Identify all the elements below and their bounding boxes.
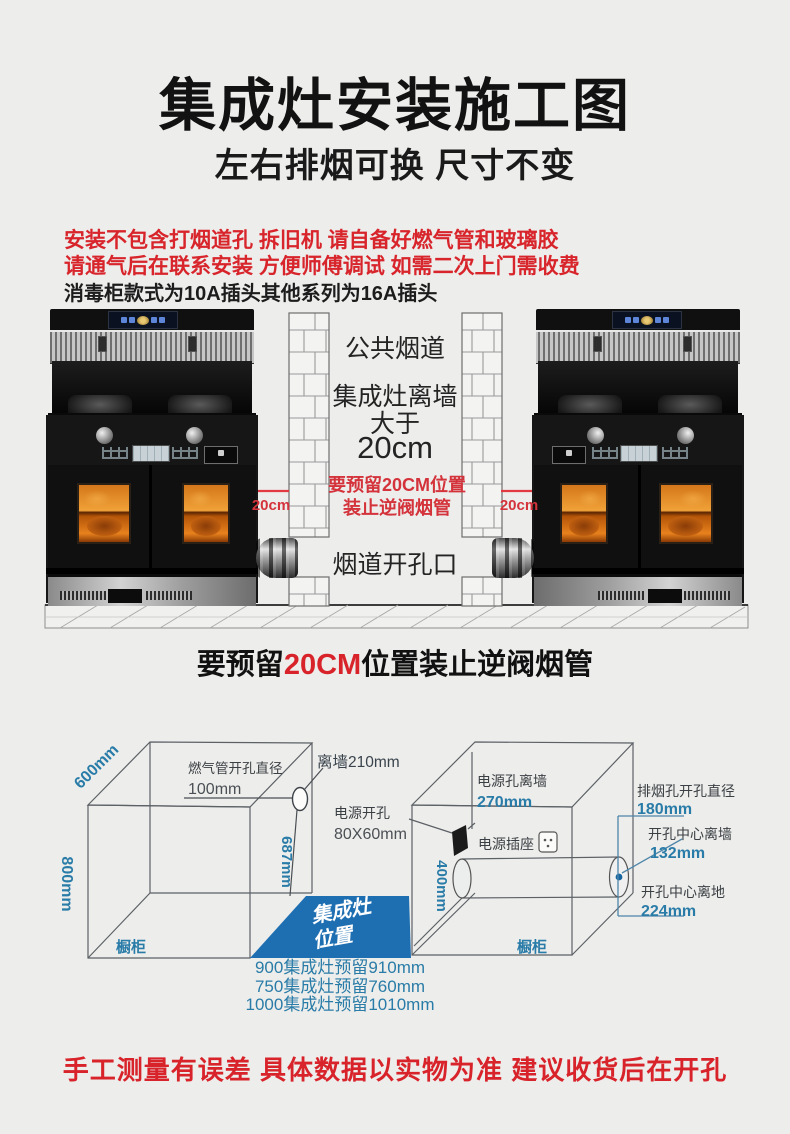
power-socket-icon [539, 832, 557, 852]
gas-hole-value: 100mm [188, 781, 241, 798]
stove-base [534, 574, 742, 606]
stove-cabinet [46, 415, 258, 603]
control-knob [96, 427, 113, 444]
power-wall-value: 270mm [477, 794, 532, 811]
warning-line-2: 请通气后在联系安装 方便师傅调试 如需二次上门需收费 [64, 250, 580, 280]
control-knob [587, 427, 604, 444]
flue-label: 公共烟道 [327, 329, 463, 365]
gas-hole-label: 燃气管开孔直径 [188, 760, 283, 776]
brand-logo-oval [137, 316, 149, 325]
power-hole-plate [452, 825, 468, 856]
reserve-banner: 要预留20CM位置装止逆阀烟管 [0, 641, 790, 683]
power-wall-label: 电源孔离墙 [477, 773, 547, 789]
power-hole-leaders [409, 752, 475, 833]
grille-clip [683, 336, 692, 352]
vent-center-wall-label: 开孔中心离墙 [648, 826, 732, 842]
height-400-label: 400mm [433, 860, 450, 912]
reserve-size-list: 900集成灶预留910mm 750集成灶预留760mm 1000集成灶预留101… [0, 959, 680, 1015]
grille-clip [188, 336, 197, 352]
oven-window [659, 483, 713, 544]
banner-prefix: 要预留 [197, 649, 284, 681]
banner-highlight: 20CM [284, 649, 361, 681]
duct-cylinder-lines [462, 857, 619, 898]
brand-logo-oval [641, 316, 653, 325]
page-subtitle: 左右排烟可换 尺寸不变 [0, 138, 790, 187]
vent-center-wall-value: 132mm [650, 845, 705, 862]
reserve-size-row: 900集成灶预留910mm [0, 959, 680, 978]
stove-base [48, 574, 256, 606]
button-row [592, 447, 618, 459]
vent-center-floor-label: 开孔中心离地 [641, 884, 725, 900]
oven-window [560, 483, 608, 544]
hood-display [612, 311, 682, 329]
left-cabinet-front-face [88, 805, 250, 958]
flue-opening-label: 烟道开孔口 [327, 545, 463, 581]
reserve-size-row: 750集成灶预留760mm [0, 978, 680, 997]
power-hole-label: 电源开孔 [334, 805, 390, 821]
height-800-label: 800mm [58, 856, 75, 911]
hood-grille [536, 330, 740, 364]
duct-center-dot [616, 874, 623, 881]
poster: 集成灶安装施工图 左右排烟可换 尺寸不变 安装不包含打烟道孔 拆旧机 请自备好燃… [0, 0, 790, 1134]
oven-window [77, 483, 131, 544]
exhaust-pipe-left [256, 538, 298, 578]
door-divider [638, 465, 641, 571]
clearance-label-3: 20cm [327, 430, 463, 466]
button-row [172, 447, 198, 459]
hood-grille [50, 330, 254, 364]
page-title: 集成灶安装施工图 [0, 60, 790, 142]
control-display [132, 445, 170, 462]
socket-label: 电源插座 [478, 836, 534, 852]
vent-center-floor-value: 224mm [641, 903, 696, 920]
control-display [620, 445, 658, 462]
base-vent [146, 591, 192, 600]
control-knob [677, 427, 694, 444]
footer-warning: 手工测量有误差 具体数据以实物为准 建议收货后在开孔 [0, 1050, 790, 1087]
banner-suffix: 位置装止逆阀烟管 [361, 649, 593, 681]
button-row [102, 447, 128, 459]
side-control-panel [552, 446, 586, 464]
oven-window [182, 483, 230, 544]
depth-600-label: 600mm [71, 741, 122, 792]
grille-clip [593, 336, 602, 352]
floor [45, 605, 748, 628]
base-plate [648, 589, 682, 603]
integrated-stove-left [46, 309, 258, 603]
reserve-note-line-2: 装止逆阀烟管 [317, 494, 477, 520]
left-gap-label: 20cm [251, 497, 291, 514]
base-vent [598, 591, 644, 600]
gas-wall-label: 离墙210mm [317, 753, 400, 771]
base-vent [60, 591, 106, 600]
side-control-panel [204, 446, 238, 464]
exhaust-pipe-right [492, 538, 534, 578]
duct-left-ellipse [453, 859, 471, 898]
grille-clip [98, 336, 107, 352]
door-divider [149, 465, 152, 571]
right-gap-label: 20cm [499, 497, 539, 514]
base-vent [684, 591, 730, 600]
vent-dia-label: 排烟孔开孔直径 [637, 783, 735, 799]
control-knob [186, 427, 203, 444]
gas-hole-ellipse [293, 788, 308, 811]
base-plate [108, 589, 142, 603]
reserve-size-row: 1000集成灶预留1010mm [0, 996, 680, 1015]
button-row [662, 447, 688, 459]
power-hole-value: 80X60mm [334, 826, 407, 843]
left-cabinet-label: 橱柜 [116, 938, 146, 956]
right-cabinet-label: 橱柜 [517, 938, 547, 956]
hood-display [108, 311, 178, 329]
gas-height-label: 687mm [278, 836, 295, 888]
stove-cabinet [532, 415, 744, 603]
vent-dia-value: 180mm [637, 801, 692, 818]
integrated-stove-right [532, 309, 744, 603]
